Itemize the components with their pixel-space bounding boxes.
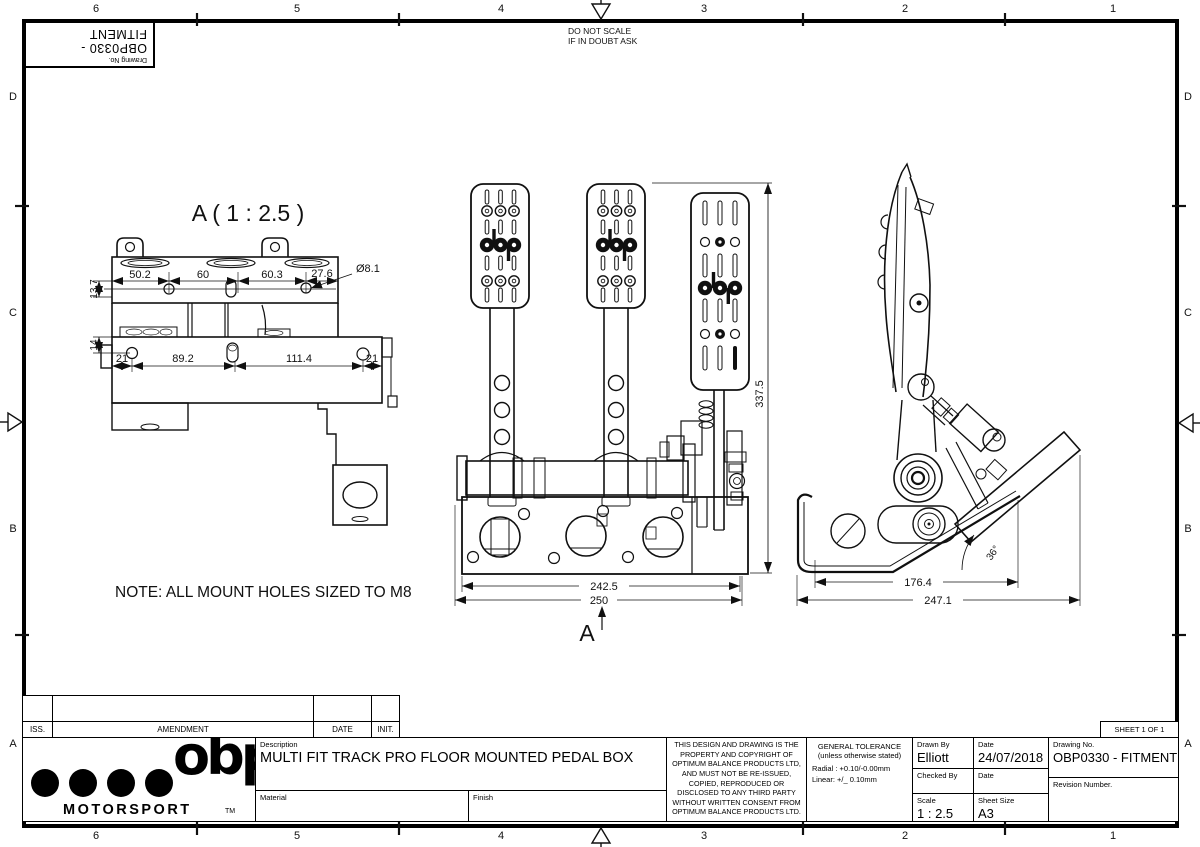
amendment-blank-iss xyxy=(22,695,53,722)
logo-dot xyxy=(107,769,135,797)
dim-hole-diameter: Ø8.1 xyxy=(356,263,380,275)
logo-dot xyxy=(145,769,173,797)
material-cell: Material xyxy=(255,790,469,822)
amendment-header-date: DATE xyxy=(313,721,372,738)
dim-247-1: 247.1 xyxy=(924,595,952,607)
amendment-blank-date xyxy=(313,695,372,722)
drawn-date-cell: Date 24/07/2018 xyxy=(973,737,1049,769)
dim-60: 60 xyxy=(197,269,209,281)
dim-21-left: 21 xyxy=(116,353,128,365)
tolerance-title: GENERAL TOLERANCE xyxy=(807,742,912,751)
checked-date-value xyxy=(974,780,1048,781)
dim-36-deg: 36° xyxy=(985,544,1003,563)
tolerance-subtitle: (unless otherwise stated) xyxy=(807,751,912,760)
material-label: Material xyxy=(256,791,468,802)
dim-89-2: 89.2 xyxy=(172,353,193,365)
drawing-no-value: OBP0330 - FITMENT xyxy=(1049,749,1178,765)
drawing-sheet: 6 5 4 3 2 1 6 5 4 3 2 1 D C B A D C B A … xyxy=(0,0,1200,847)
revision-cell: Revision Number. xyxy=(1048,777,1179,822)
dim-14: 14 xyxy=(89,339,100,351)
dim-250: 250 xyxy=(590,595,608,607)
front-view: 337.5 242.5 250 A xyxy=(455,183,772,646)
finish-cell: Finish xyxy=(468,790,667,822)
drawing-no-label: Drawing No. xyxy=(1049,738,1178,749)
dim-111-4: 111.4 xyxy=(286,353,312,365)
description-value: MULTI FIT TRACK PRO FLOOR MOUNTED PEDAL … xyxy=(256,749,666,766)
detail-view-a: A ( 1 : 2.5 ) 50.2 60 60.3 xyxy=(89,200,397,525)
logo-cell: obp MOTORSPORT TM xyxy=(22,737,256,822)
checked-by-label: Checked By xyxy=(913,769,973,780)
revision-value xyxy=(1049,789,1178,790)
dim-242-5: 242.5 xyxy=(590,581,618,593)
checked-by-cell: Checked By xyxy=(912,768,974,794)
amendment-blank-init xyxy=(371,695,400,722)
obp-logo-word: obp xyxy=(173,737,256,787)
description-cell: Description MULTI FIT TRACK PRO FLOOR MO… xyxy=(255,737,667,791)
logo-dot xyxy=(69,769,97,797)
drawn-by-value: Elliott xyxy=(913,749,973,765)
drawn-date-label: Date xyxy=(974,738,1048,749)
dim-60-3: 60.3 xyxy=(261,269,282,281)
detail-view-title: A ( 1 : 2.5 ) xyxy=(192,200,305,226)
amendment-header-amendment: AMENDMENT xyxy=(52,721,314,738)
sheet-info: SHEET 1 OF 1 xyxy=(1100,721,1179,738)
dim-13-7: 13.7 xyxy=(89,279,100,299)
dim-337-5: 337.5 xyxy=(754,380,766,408)
amendment-blank-text xyxy=(52,695,314,722)
sheet-size-value: A3 xyxy=(974,805,1048,821)
sheet-size-label: Sheet Size xyxy=(974,794,1048,805)
dim-176-4: 176.4 xyxy=(904,577,932,589)
revision-label: Revision Number. xyxy=(1049,778,1178,789)
finish-value xyxy=(469,802,666,803)
obp-logo-tm: TM xyxy=(225,808,235,815)
section-label-a: A xyxy=(579,620,595,646)
dim-50-2: 50.2 xyxy=(129,269,150,281)
mount-holes-note: NOTE: ALL MOUNT HOLES SIZED TO M8 xyxy=(115,584,412,601)
tolerance-cell: GENERAL TOLERANCE (unless otherwise stat… xyxy=(806,737,913,822)
tolerance-linear: Linear: +/_ 0.10mm xyxy=(807,775,912,784)
sheet-size-cell: Sheet Size A3 xyxy=(973,793,1049,822)
checked-date-label: Date xyxy=(974,769,1048,780)
dim-27-6: 27.6 xyxy=(311,268,332,280)
obp-logo-motorsport: MOTORSPORT xyxy=(63,802,192,818)
scale-cell: Scale 1 : 2.5 xyxy=(912,793,974,822)
logo-dot xyxy=(31,769,59,797)
scale-label: Scale xyxy=(913,794,973,805)
checked-date-cell: Date xyxy=(973,768,1049,794)
obp-logo-dots xyxy=(31,769,173,797)
scale-value: 1 : 2.5 xyxy=(913,805,973,821)
material-value xyxy=(256,802,468,803)
side-view: 36° 176.4 247.1 xyxy=(797,164,1080,607)
copyright-cell: THIS DESIGN AND DRAWING IS THE PROPERTY … xyxy=(666,737,807,822)
tolerance-radial: Radial : +0.10/-0.00mm xyxy=(807,764,912,773)
drawn-date-value: 24/07/2018 xyxy=(974,749,1048,765)
finish-label: Finish xyxy=(469,791,666,802)
dim-21-right: 21 xyxy=(366,353,378,365)
amendment-header-init: INIT. xyxy=(371,721,400,738)
amendment-header-iss: ISS. xyxy=(22,721,53,738)
drawn-by-label: Drawn By xyxy=(913,738,973,749)
description-label: Description xyxy=(256,738,666,749)
checked-by-value xyxy=(913,780,973,781)
drawing-no-cell: Drawing No. OBP0330 - FITMENT xyxy=(1048,737,1179,778)
drawn-by-cell: Drawn By Elliott xyxy=(912,737,974,769)
